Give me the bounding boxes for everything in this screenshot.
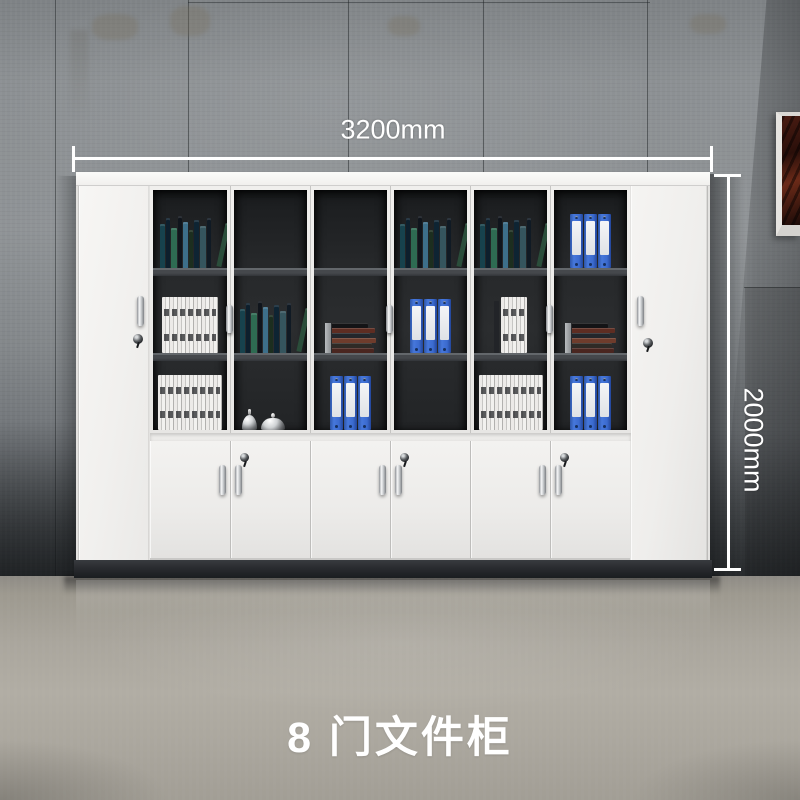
glass-door-handle: [386, 305, 393, 333]
bottom-door-6: [550, 441, 630, 560]
shelf: [394, 353, 467, 361]
glass-interior: [394, 190, 467, 430]
cabinet-floor-reflection: [76, 580, 710, 638]
door-handle: [379, 465, 386, 495]
wall-stain: [92, 14, 138, 40]
shelf-compartment: [314, 190, 387, 268]
door-handle: [637, 296, 644, 326]
cabinet-cast-shadow: [56, 176, 78, 576]
width-dimension-label: 3200mm: [340, 115, 445, 146]
blue-binders: [570, 376, 611, 430]
glass-door-handle: [226, 305, 233, 333]
glass-door-1: [150, 186, 230, 433]
door-handle: [395, 465, 402, 495]
shelf-compartment: [394, 361, 467, 430]
glass-interior: [234, 190, 307, 430]
shelf-compartment: [554, 276, 627, 353]
shelf-compartment: [234, 190, 307, 268]
width-dimension-line: [73, 157, 712, 160]
wall-art-frame: [776, 112, 800, 236]
shelf-compartment: [314, 276, 387, 353]
door-lock: [133, 334, 143, 344]
tall-door-right: [631, 186, 708, 560]
bookend: [325, 323, 331, 353]
glass-interior: [474, 190, 547, 430]
height-dimension-tick: [714, 174, 741, 177]
shelf-compartment: [234, 276, 307, 353]
white-file-stack: [162, 297, 218, 353]
blue-binders: [410, 299, 451, 353]
filing-cabinet: [76, 172, 710, 578]
tall-door-left: [78, 186, 149, 560]
width-dimension-tick: [710, 146, 713, 172]
stacked-books: [565, 323, 616, 353]
stacked-books: [325, 323, 376, 353]
door-handle: [219, 465, 226, 495]
shelf-compartment: [153, 276, 227, 353]
shelf: [554, 353, 627, 361]
bottom-door-3: [310, 441, 390, 560]
door-lock: [560, 453, 569, 462]
height-dimension-line: [727, 176, 730, 570]
bell-decor: [242, 415, 299, 430]
bookend: [565, 323, 571, 353]
glass-door-handle: [546, 305, 553, 333]
height-dimension-label: 2000mm: [738, 387, 769, 492]
shelf: [554, 268, 627, 276]
shelf: [394, 268, 467, 276]
white-file-stack: [158, 375, 222, 430]
shelf-compartment: [474, 276, 547, 353]
wall-stain: [70, 30, 88, 120]
wall-stain: [170, 6, 210, 36]
cabinet-plinth: [74, 560, 712, 578]
door-handle: [539, 465, 546, 495]
door-handle: [555, 465, 562, 495]
door-lock: [240, 453, 249, 462]
glass-interior: [314, 190, 387, 430]
shelf: [234, 353, 307, 361]
glass-door-2: [230, 186, 310, 433]
bottom-door-5: [470, 441, 550, 560]
shelf-compartment: [234, 361, 307, 430]
wall-stain: [690, 14, 726, 34]
wall-stain: [388, 16, 420, 36]
shelf: [153, 268, 227, 276]
door-handle: [235, 465, 242, 495]
shelf-compartment: [474, 190, 547, 268]
book-row: [160, 216, 221, 268]
shelf: [234, 268, 307, 276]
shelf-compartment: [153, 190, 227, 268]
cabinet-mid-rail: [150, 433, 631, 441]
bottom-door-2: [230, 441, 310, 560]
book-row: [240, 301, 301, 353]
glass-door-6: [550, 186, 630, 433]
book-row: [480, 216, 541, 268]
cabinet-top-panel: [76, 172, 710, 186]
glass-interior: [153, 190, 227, 430]
bottom-door-1: [150, 441, 230, 560]
white-file-stack: [479, 375, 543, 430]
shelf-compartment: [314, 361, 387, 430]
white-file-stack: [494, 297, 527, 353]
shelf-compartment: [394, 190, 467, 268]
glass-interior: [554, 190, 627, 430]
height-dimension-tick: [714, 568, 741, 571]
glass-door-5: [470, 186, 550, 433]
product-photo-scene: 3200mm 2000mm 8 门文件柜: [0, 0, 800, 800]
shelf-compartment: [474, 361, 547, 430]
wall-seam: [188, 2, 650, 3]
shelf: [314, 353, 387, 361]
blue-binders: [570, 214, 611, 268]
cabinet-cast-shadow: [708, 174, 744, 576]
shelf-compartment: [394, 276, 467, 353]
product-caption: 8 门文件柜: [287, 703, 513, 765]
width-dimension-tick: [72, 146, 75, 172]
blue-binders: [330, 376, 371, 430]
shelf-compartment: [153, 361, 227, 430]
door-handle: [137, 296, 144, 326]
door-lock: [400, 453, 409, 462]
shelf: [153, 353, 227, 361]
glass-door-3: [310, 186, 390, 433]
bottom-door-4: [390, 441, 470, 560]
book-row: [400, 216, 461, 268]
shelf: [474, 353, 547, 361]
door-lock: [643, 338, 653, 348]
shelf: [314, 268, 387, 276]
shelf-compartment: [554, 361, 627, 430]
shelf-compartment: [554, 190, 627, 268]
shelf: [474, 268, 547, 276]
glass-door-4: [390, 186, 470, 433]
